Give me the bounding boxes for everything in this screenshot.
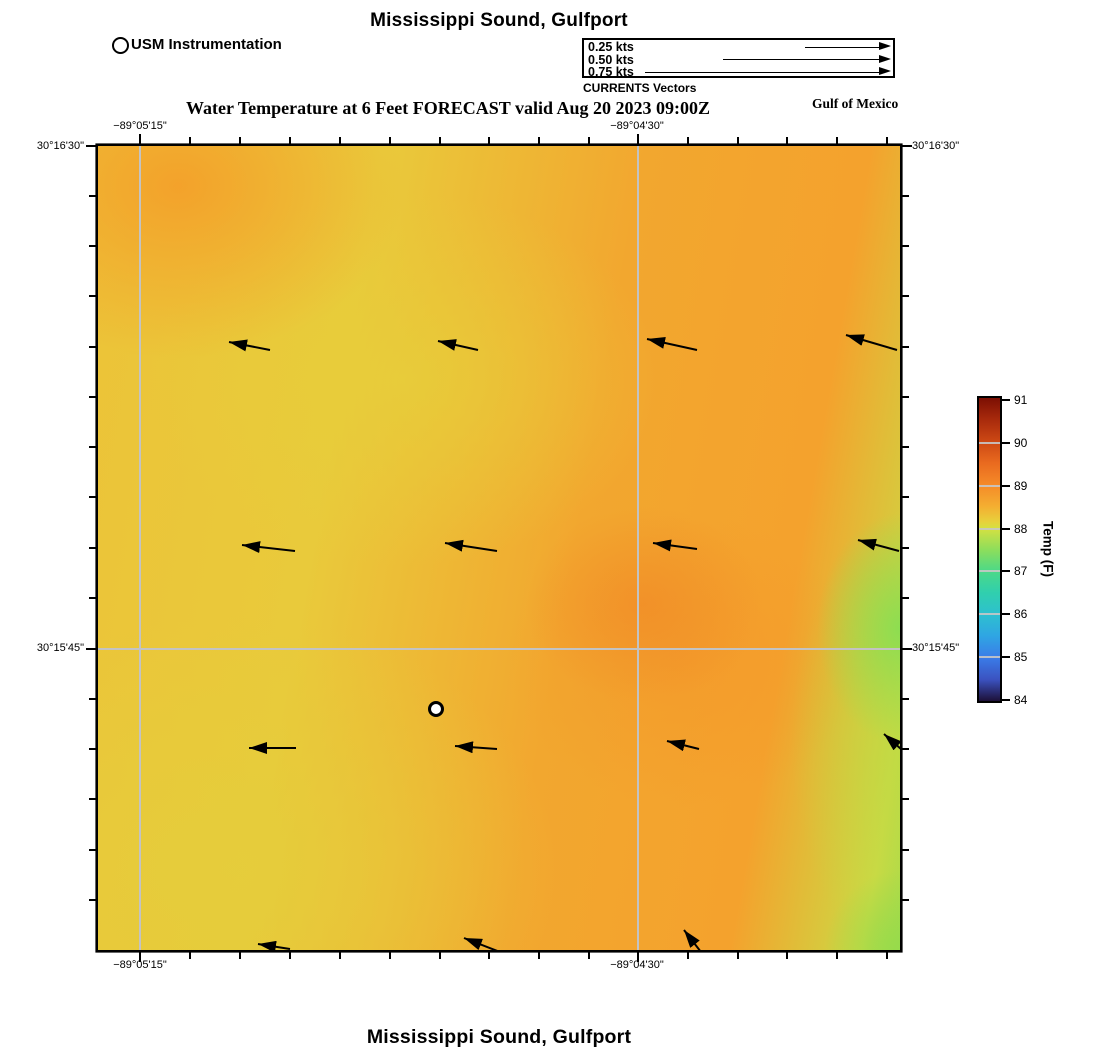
axis-tick: [89, 899, 96, 900]
axis-tick: [1002, 528, 1010, 530]
currents-legend-label: 0.75 kts: [588, 66, 634, 79]
axis-tick: [687, 137, 688, 144]
current-vector-arrow: [858, 540, 899, 551]
axis-tick: [902, 748, 909, 749]
axis-tick: [902, 496, 909, 497]
axis-tick: [289, 137, 290, 144]
station-marker: [430, 703, 443, 716]
axis-tick: [902, 245, 909, 246]
right-arrow-icon: [879, 67, 891, 75]
current-vector-arrow: [242, 545, 295, 551]
axis-tick: [902, 396, 909, 397]
station-legend-label: USM Instrumentation: [131, 36, 282, 53]
axis-tick: [439, 137, 440, 144]
current-vector-arrow: [438, 341, 478, 350]
axis-tick: [239, 952, 240, 959]
axis-tick: [239, 137, 240, 144]
current-vector-arrow: [647, 339, 697, 350]
axis-tick: [139, 134, 141, 144]
colorbar-gridline: [979, 613, 1000, 615]
current-vector-arrow: [884, 734, 900, 749]
current-arrow-shaft: [645, 72, 880, 73]
currents-legend-row: 0.75 kts: [584, 66, 893, 79]
currents-legend-label: 0.25 kts: [588, 41, 634, 54]
colorbar-gridline: [979, 570, 1000, 572]
axis-tick: [902, 145, 912, 147]
axis-tick: [737, 137, 738, 144]
region-label: Gulf of Mexico: [812, 96, 898, 112]
axis-tick: [89, 496, 96, 497]
axis-tick: [902, 295, 909, 296]
axis-tick: [189, 137, 190, 144]
plot-subtitle: Water Temperature at 6 Feet FORECAST val…: [98, 98, 798, 119]
colorbar-tick-label: 85: [1014, 650, 1027, 664]
axis-tick: [902, 648, 912, 650]
current-vector-arrow: [455, 746, 497, 749]
axis-tick: [538, 952, 539, 959]
axis-tick: [189, 952, 190, 959]
y-axis-tick-label: 30°16'30": [912, 140, 1002, 153]
colorbar-gridline: [979, 485, 1000, 487]
x-axis-tick-label: −89°05'15": [95, 120, 185, 133]
colorbar-tick-label: 87: [1014, 564, 1027, 578]
y-axis-tick-label: 30°15'45": [0, 642, 84, 655]
colorbar-tick-label: 86: [1014, 607, 1027, 621]
current-vector-arrow: [229, 342, 270, 350]
axis-tick: [89, 698, 96, 699]
axis-tick: [89, 346, 96, 347]
currents-legend-row: 0.25 kts: [584, 41, 893, 54]
current-arrow-shaft: [805, 47, 880, 48]
axis-tick: [902, 547, 909, 548]
axis-tick: [89, 748, 96, 749]
axis-tick: [902, 446, 909, 447]
axis-tick: [89, 245, 96, 246]
x-axis-tick-label: −89°04'30": [592, 959, 682, 972]
page-title: Mississippi Sound, Gulfport: [98, 10, 900, 32]
axis-tick: [836, 952, 837, 959]
x-axis-tick-label: −89°04'30": [592, 120, 682, 133]
axis-tick: [89, 396, 96, 397]
axis-tick: [538, 137, 539, 144]
axis-tick: [902, 597, 909, 598]
axis-tick: [89, 547, 96, 548]
axis-tick: [1002, 570, 1010, 572]
axis-tick: [86, 648, 96, 650]
axis-tick: [786, 137, 787, 144]
y-axis-tick-label: 30°16'30": [0, 140, 84, 153]
axis-tick: [89, 446, 96, 447]
axis-tick: [786, 952, 787, 959]
axis-tick: [1002, 442, 1010, 444]
colorbar-title: Temp (F): [1041, 521, 1056, 577]
current-vector-arrow: [445, 543, 497, 551]
axis-tick: [902, 195, 909, 196]
colorbar-tick-label: 89: [1014, 479, 1027, 493]
axis-tick: [836, 137, 837, 144]
current-vector-layer: [98, 146, 900, 950]
axis-tick: [1002, 613, 1010, 615]
axis-tick: [902, 798, 909, 799]
axis-tick: [588, 137, 589, 144]
axis-tick: [89, 798, 96, 799]
axis-tick: [902, 346, 909, 347]
right-arrow-icon: [879, 55, 891, 63]
colorbar-gridline: [979, 528, 1000, 530]
bottom-title: Mississippi Sound, Gulfport: [98, 1026, 900, 1049]
axis-tick: [588, 952, 589, 959]
axis-tick: [89, 295, 96, 296]
y-axis-tick-label: 30°15'45": [912, 642, 1002, 655]
current-vector-arrow: [667, 741, 699, 749]
current-arrow-shaft: [723, 59, 880, 60]
axis-tick: [886, 952, 887, 959]
colorbar-gridline: [979, 656, 1000, 658]
current-vector-arrow: [846, 335, 897, 350]
temperature-field-map: [98, 146, 900, 950]
axis-tick: [902, 698, 909, 699]
axis-tick: [86, 145, 96, 147]
axis-tick: [902, 899, 909, 900]
axis-tick: [289, 952, 290, 959]
currents-legend-caption: CURRENTS Vectors: [583, 81, 696, 95]
current-vector-arrow: [653, 543, 697, 549]
x-axis-tick-label: −89°05'15": [95, 959, 185, 972]
colorbar-tick-label: 88: [1014, 522, 1027, 536]
axis-tick: [737, 952, 738, 959]
axis-tick: [886, 137, 887, 144]
colorbar-gridline: [979, 442, 1000, 444]
axis-tick: [389, 952, 390, 959]
axis-tick: [439, 952, 440, 959]
colorbar-tick-label: 84: [1014, 693, 1027, 707]
axis-tick: [902, 849, 909, 850]
axis-tick: [488, 952, 489, 959]
axis-tick: [637, 134, 639, 144]
axis-tick: [1002, 485, 1010, 487]
current-vector-arrow: [464, 938, 500, 950]
axis-tick: [687, 952, 688, 959]
current-vector-arrow: [684, 930, 701, 950]
right-arrow-icon: [879, 42, 891, 50]
axis-tick: [89, 597, 96, 598]
axis-tick: [389, 137, 390, 144]
axis-tick: [1002, 699, 1010, 701]
station-legend-marker-icon: [112, 37, 129, 54]
axis-tick: [1002, 399, 1010, 401]
axis-tick: [339, 137, 340, 144]
colorbar-tick-label: 91: [1014, 393, 1027, 407]
axis-tick: [89, 849, 96, 850]
axis-tick: [488, 137, 489, 144]
axis-tick: [1002, 656, 1010, 658]
colorbar-tick-label: 90: [1014, 436, 1027, 450]
currents-legend-box: 0.25 kts 0.50 kts 0.75 kts: [582, 38, 895, 78]
axis-tick: [339, 952, 340, 959]
current-vector-arrow: [258, 944, 290, 949]
axis-tick: [89, 195, 96, 196]
forecast-plot-page: Mississippi Sound, Gulfport USM Instrume…: [0, 0, 1100, 1050]
